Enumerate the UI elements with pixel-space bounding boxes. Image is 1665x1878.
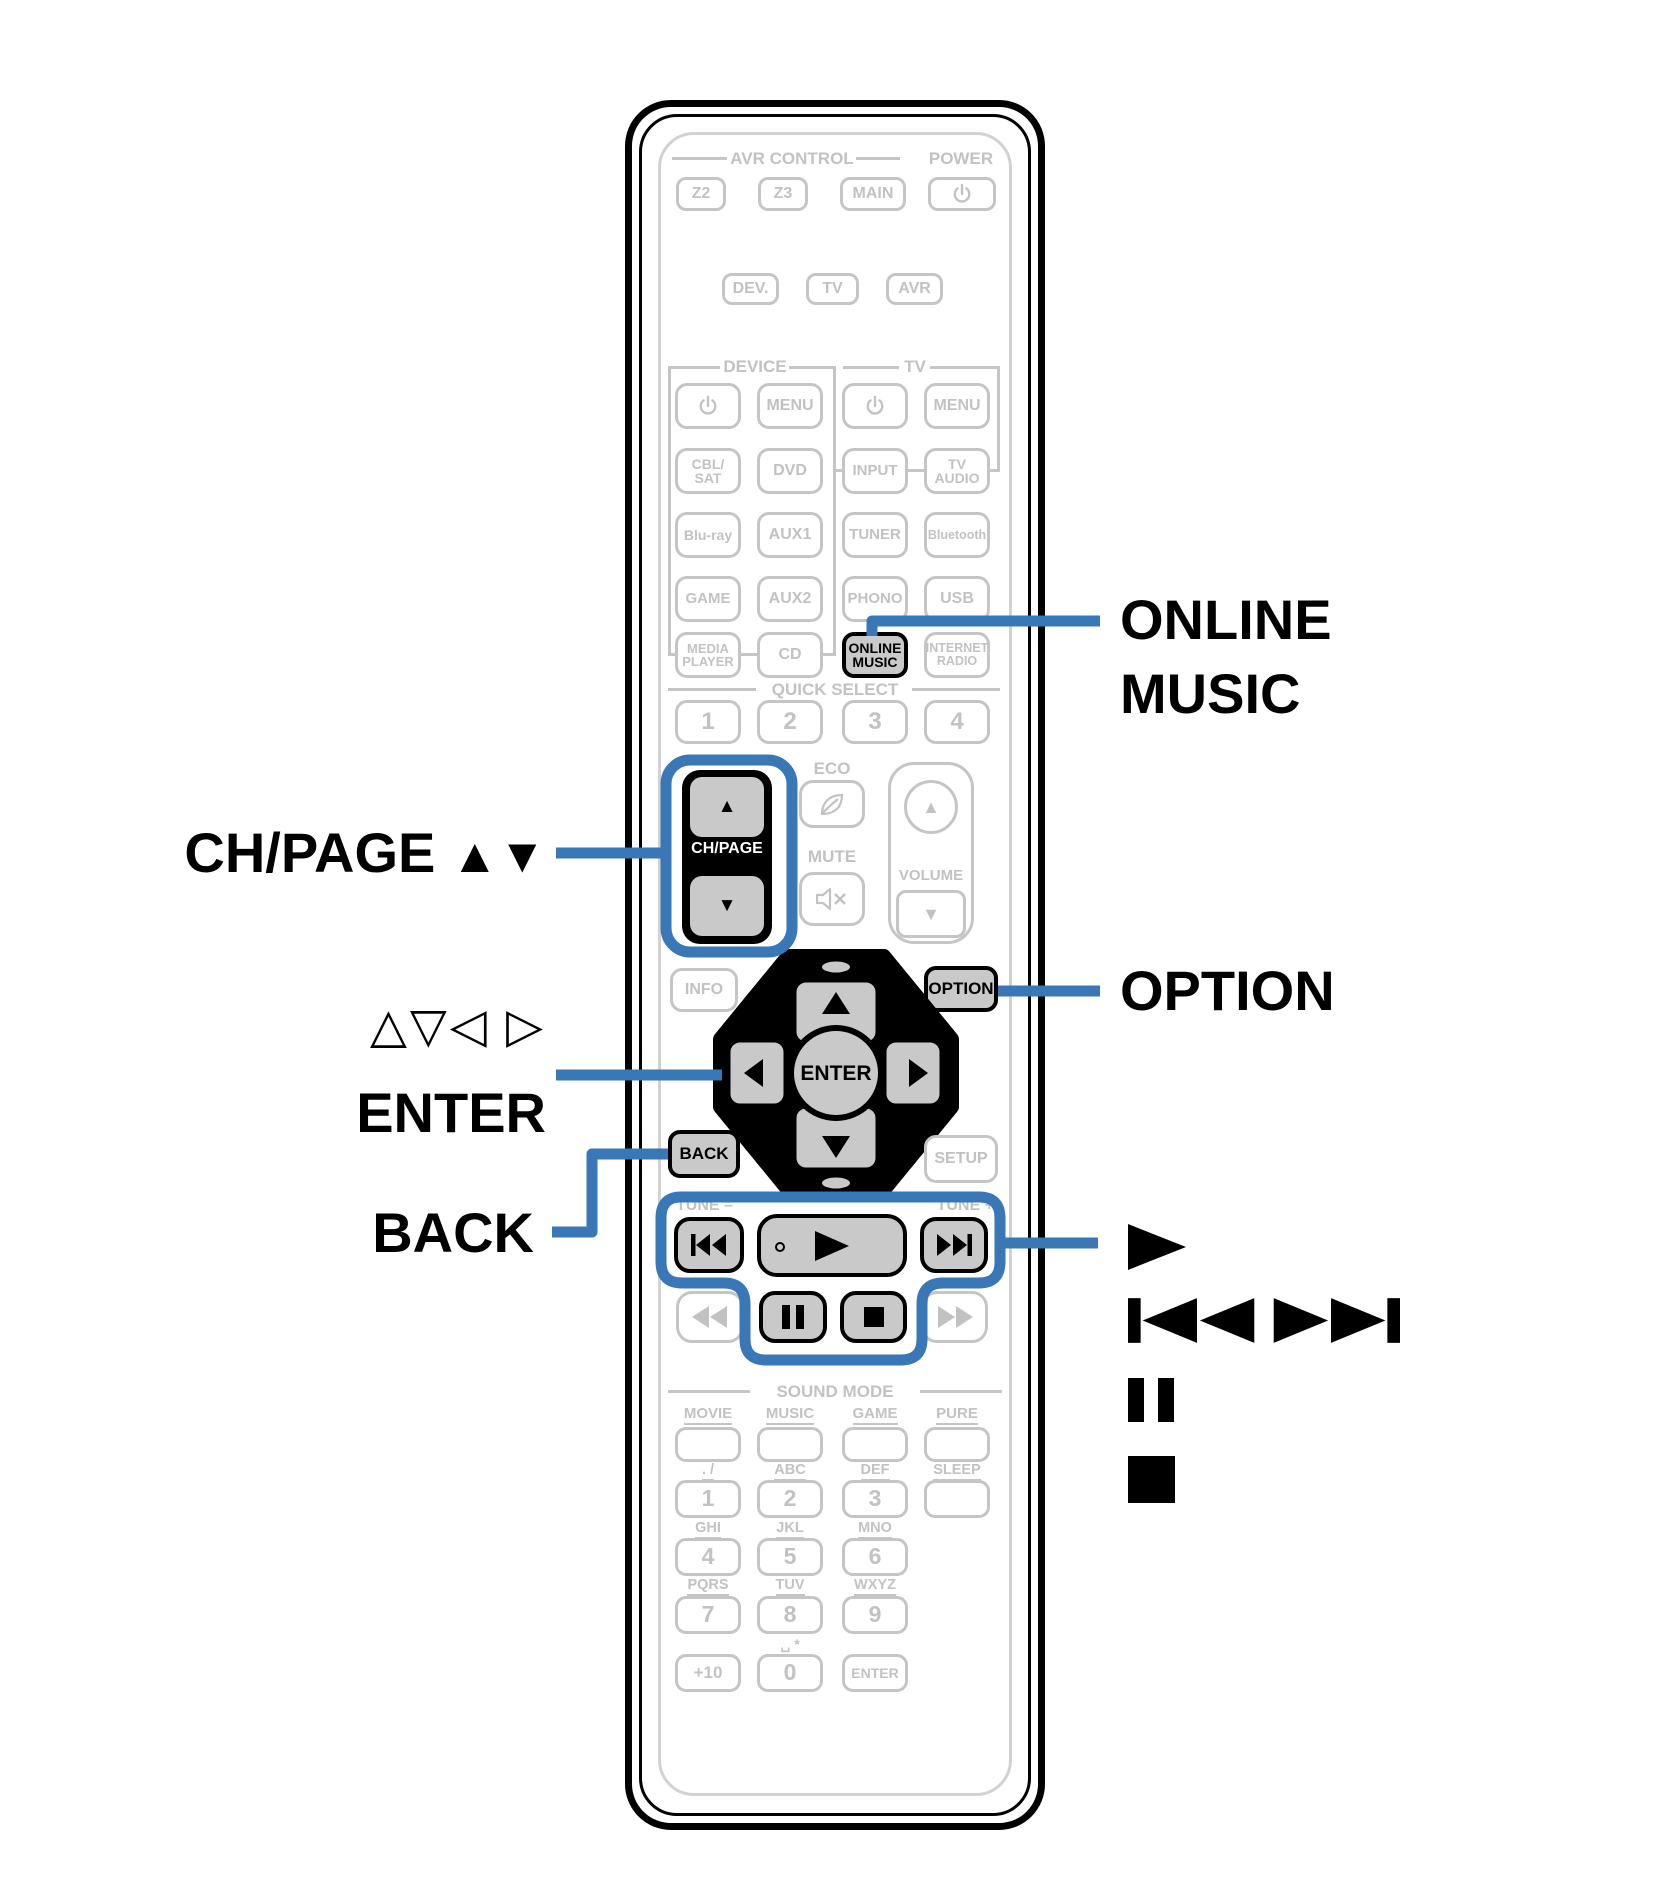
enter-callout-label: ENTER bbox=[150, 1080, 546, 1145]
setup-button[interactable]: SETUP bbox=[924, 1135, 998, 1183]
avr-control-label: AVR CONTROL bbox=[730, 150, 854, 168]
bluetooth-button[interactable]: Bluetooth bbox=[924, 512, 990, 558]
avr-power-button[interactable] bbox=[928, 177, 996, 211]
zero-tap-label: ␣ * bbox=[757, 1637, 823, 1652]
ch-page-down-button[interactable]: ▼ bbox=[690, 876, 764, 936]
music-button[interactable] bbox=[757, 1427, 823, 1462]
pure-button[interactable] bbox=[924, 1427, 990, 1462]
tv-menu-button[interactable]: MENU bbox=[924, 383, 990, 429]
down-triangle-icon: ▼ bbox=[718, 895, 737, 917]
digit-9-button[interactable]: 9 bbox=[842, 1596, 908, 1634]
game-mode-button[interactable] bbox=[842, 1427, 908, 1462]
tuner-button[interactable]: TUNER bbox=[842, 512, 908, 558]
tv-bracket-top-left bbox=[843, 366, 899, 369]
digit-8-button[interactable]: 8 bbox=[757, 1596, 823, 1634]
tv-mode-button[interactable]: TV bbox=[806, 273, 859, 305]
stop-callout-icon bbox=[1128, 1456, 1175, 1503]
skip-back-forward-callout-icon bbox=[1128, 1298, 1400, 1343]
sleep-button[interactable] bbox=[924, 1480, 990, 1518]
usb-button[interactable]: USB bbox=[924, 576, 990, 622]
quick-select-line-left bbox=[668, 688, 756, 691]
music-label: MUSIC bbox=[757, 1406, 823, 1422]
leaf-icon bbox=[819, 791, 845, 817]
back-button[interactable]: BACK bbox=[668, 1130, 740, 1178]
aux2-button[interactable]: AUX2 bbox=[757, 576, 823, 622]
fast-forward-button[interactable] bbox=[921, 1291, 988, 1343]
digit-0-button[interactable]: 0 bbox=[757, 1654, 823, 1692]
ch-page-up-button[interactable]: ▲ bbox=[690, 777, 764, 837]
digit-2-button[interactable]: 2 bbox=[757, 1480, 823, 1518]
ch-page-rocker-label: CH/PAGE bbox=[682, 841, 772, 858]
sound-mode-line-left bbox=[668, 1390, 750, 1393]
mute-label: MUTE bbox=[799, 848, 865, 866]
eco-button[interactable] bbox=[799, 780, 865, 828]
tap-label-5: JKL bbox=[757, 1521, 823, 1536]
cursor-pad-bottom-dimple bbox=[822, 1178, 850, 1189]
device-power-button[interactable] bbox=[675, 383, 741, 429]
down-triangle-icon: ▼ bbox=[922, 904, 940, 925]
volume-up-button[interactable]: ▲ bbox=[904, 780, 958, 834]
power-label: POWER bbox=[925, 150, 997, 168]
up-triangle-icon: ▲ bbox=[922, 797, 940, 818]
cursor-pad-top-dimple bbox=[822, 962, 850, 973]
tap-label-4: GHI bbox=[675, 1521, 741, 1536]
digit-4-button[interactable]: 4 bbox=[675, 1538, 741, 1576]
tap-label-2: ABC bbox=[757, 1463, 823, 1478]
z2-button[interactable]: Z2 bbox=[676, 177, 726, 211]
tap-label-7: PQRS bbox=[675, 1578, 741, 1593]
sound-mode-line-right bbox=[920, 1390, 1002, 1393]
up-down-triangles-icon: ▲▼ bbox=[451, 830, 546, 883]
main-button[interactable]: MAIN bbox=[840, 177, 906, 211]
skip-back-icon bbox=[690, 1234, 728, 1256]
volume-label: VOLUME bbox=[888, 868, 974, 884]
z3-button[interactable]: Z3 bbox=[758, 177, 808, 211]
numpad-enter-button[interactable]: ENTER bbox=[842, 1654, 908, 1692]
digit-7-button[interactable]: 7 bbox=[675, 1596, 741, 1634]
dev-button[interactable]: DEV. bbox=[722, 273, 779, 305]
sound-mode-label: SOUND MODE bbox=[758, 1383, 912, 1401]
online-music-button[interactable]: ONLINE MUSIC bbox=[842, 632, 908, 678]
tv-audio-button[interactable]: TV AUDIO bbox=[924, 448, 990, 494]
movie-label: MOVIE bbox=[675, 1406, 741, 1422]
digit-6-button[interactable]: 6 bbox=[842, 1538, 908, 1576]
avr-control-line-right bbox=[856, 157, 900, 160]
game-label: GAME bbox=[842, 1406, 908, 1422]
avr-mode-button[interactable]: AVR bbox=[886, 273, 943, 305]
movie-button[interactable] bbox=[675, 1427, 741, 1462]
cd-button[interactable]: CD bbox=[757, 632, 823, 678]
tv-power-button[interactable] bbox=[842, 383, 908, 429]
tap-label-1: . / bbox=[675, 1463, 741, 1478]
power-icon bbox=[952, 183, 972, 205]
pause-callout-icon bbox=[1128, 1378, 1174, 1422]
device-bracket-left bbox=[668, 366, 671, 656]
device-bracket-top-right bbox=[789, 366, 835, 369]
tap-label-8: TUV bbox=[757, 1578, 823, 1593]
internet-radio-button[interactable]: INTERNET RADIO bbox=[924, 632, 990, 678]
skip-back-button[interactable] bbox=[674, 1217, 744, 1273]
fast-forward-icon bbox=[937, 1306, 973, 1328]
power-icon bbox=[698, 395, 718, 417]
play-button[interactable] bbox=[757, 1214, 907, 1277]
eco-label: ECO bbox=[806, 760, 858, 778]
digit-5-button[interactable]: 5 bbox=[757, 1538, 823, 1576]
phono-button[interactable]: PHONO bbox=[842, 576, 908, 622]
option-callout-label: OPTION bbox=[1120, 958, 1335, 1023]
enter-button-label: ENTER bbox=[788, 1062, 884, 1086]
tune-plus-label: TUNE + bbox=[902, 1198, 994, 1215]
pure-label: PURE bbox=[924, 1406, 990, 1422]
pause-button[interactable] bbox=[759, 1291, 827, 1343]
digit-1-button[interactable]: 1 bbox=[675, 1480, 741, 1518]
device-group-label: DEVICE bbox=[722, 358, 788, 376]
plus-10-button[interactable]: +10 bbox=[675, 1654, 741, 1692]
quick-select-2-button[interactable]: 2 bbox=[757, 700, 823, 744]
quick-select-label: QUICK SELECT bbox=[762, 681, 908, 699]
tv-bracket-right bbox=[997, 366, 1000, 472]
pause-icon bbox=[782, 1305, 804, 1329]
device-bracket-top-left bbox=[668, 366, 720, 369]
mute-button[interactable] bbox=[799, 872, 865, 926]
input-button[interactable]: INPUT bbox=[842, 448, 908, 494]
manual-diagram: AVR CONTROL POWER Z2 Z3 MAIN DEV. TV AVR… bbox=[0, 0, 1665, 1878]
power-icon bbox=[865, 395, 885, 417]
blu-ray-button[interactable]: Blu-ray bbox=[675, 512, 741, 558]
skip-forward-icon bbox=[935, 1234, 973, 1256]
game-button[interactable]: GAME bbox=[675, 576, 741, 622]
play-callout-icon bbox=[1128, 1224, 1186, 1270]
stop-icon bbox=[864, 1307, 884, 1327]
tap-label-6: MNO bbox=[842, 1521, 908, 1536]
sleep-label: SLEEP bbox=[924, 1463, 990, 1478]
media-player-button[interactable]: MEDIA PLAYER bbox=[675, 632, 741, 678]
aux1-button[interactable]: AUX1 bbox=[757, 512, 823, 558]
cbl-sat-button[interactable]: CBL/ SAT bbox=[675, 448, 741, 494]
rewind-button[interactable] bbox=[676, 1291, 744, 1343]
skip-forward-button[interactable] bbox=[920, 1217, 988, 1273]
tune-minus-label: TUNE – bbox=[676, 1198, 766, 1215]
tv-group-label: TV bbox=[895, 358, 935, 376]
volume-down-button[interactable]: ▼ bbox=[896, 890, 966, 938]
play-button-dimple bbox=[775, 1242, 785, 1252]
quick-select-1-button[interactable]: 1 bbox=[675, 700, 741, 744]
dvd-button[interactable]: DVD bbox=[757, 448, 823, 494]
avr-control-line-left bbox=[672, 157, 727, 160]
tap-label-9: WXYZ bbox=[842, 1578, 908, 1593]
rewind-icon bbox=[692, 1306, 728, 1328]
tap-label-3: DEF bbox=[842, 1463, 908, 1478]
device-menu-button[interactable]: MENU bbox=[757, 383, 823, 429]
quick-select-4-button[interactable]: 4 bbox=[924, 700, 990, 744]
ch-page-callout-label: CH/PAGE ▲▼ bbox=[150, 820, 546, 885]
stop-button[interactable] bbox=[840, 1291, 907, 1343]
device-bracket-middle bbox=[833, 366, 836, 656]
back-callout-label: BACK bbox=[150, 1200, 534, 1265]
play-icon bbox=[815, 1231, 849, 1261]
digit-3-button[interactable]: 3 bbox=[842, 1480, 908, 1518]
up-triangle-icon: ▲ bbox=[718, 796, 737, 818]
mute-icon bbox=[816, 887, 848, 911]
cursor-arrows-callout-label: △▽◁ ▷ bbox=[150, 998, 546, 1054]
quick-select-3-button[interactable]: 3 bbox=[842, 700, 908, 744]
quick-select-line-right bbox=[912, 688, 1000, 691]
tv-bracket-top-right bbox=[930, 366, 999, 369]
online-music-callout-label: ONLINE MUSIC bbox=[1120, 583, 1332, 731]
